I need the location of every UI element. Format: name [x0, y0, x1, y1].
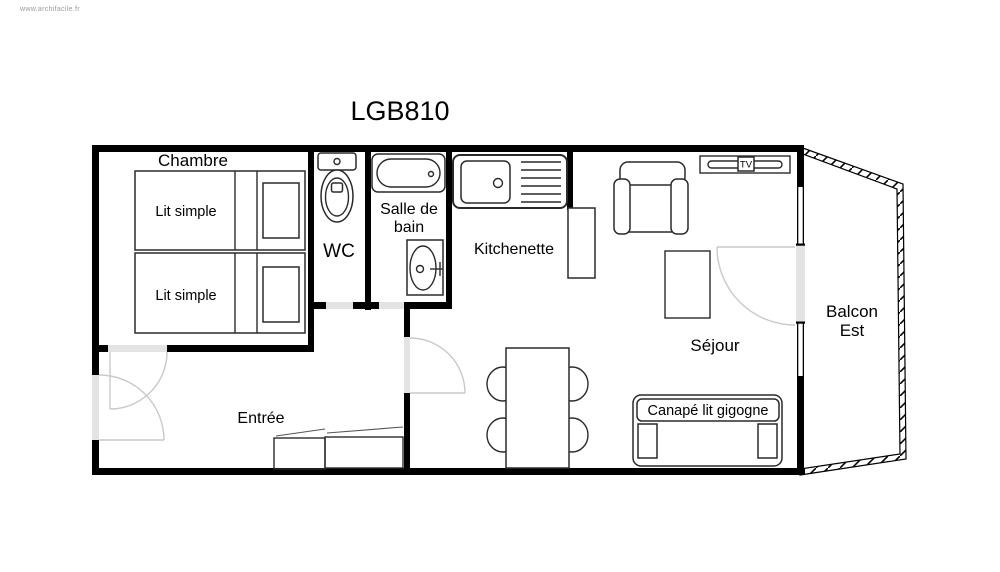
room-label-sejour: Séjour [690, 336, 739, 355]
room-label-entree: Entrée [237, 410, 284, 427]
entry-storage [274, 427, 403, 469]
tv-label: TV [740, 160, 753, 171]
bed-single-1: Lit simple [135, 171, 305, 250]
floor-plan-drawing: LGB810 [0, 0, 1000, 572]
sofa-cushion [638, 424, 657, 458]
entry-door-opening [92, 375, 99, 440]
sofa-bed: Canapé lit gigogne [633, 395, 782, 466]
bed-label: Lit simple [155, 204, 216, 220]
balcony-door-arc [717, 247, 795, 325]
side-table [665, 251, 710, 318]
entry-door-arc [99, 375, 164, 440]
wc-door-opening [326, 302, 353, 309]
bed-single-2: Lit simple [135, 253, 305, 333]
balcony-door-opening [796, 245, 805, 323]
room-label-wc: WC [323, 241, 355, 262]
bath-door-opening [379, 302, 404, 309]
plan-title: LGB810 [350, 96, 449, 126]
sofa-label: Canapé lit gigogne [648, 403, 769, 419]
hall-door-arc [410, 338, 465, 393]
chambre-door-arc [110, 352, 167, 409]
bathtub [372, 154, 445, 192]
dining-table [506, 348, 569, 468]
bathroom-sink [407, 240, 443, 295]
room-label-balcon-1: Balcon [826, 302, 878, 321]
balcony-window-wall [796, 187, 805, 376]
dining-set [487, 348, 588, 468]
pillow [263, 183, 299, 238]
kitchen-counter [453, 155, 567, 208]
sofa-cushion [758, 424, 777, 458]
bed-label: Lit simple [155, 288, 216, 304]
room-label-balcon-2: Est [840, 321, 865, 340]
room-label-chambre: Chambre [158, 151, 228, 170]
room-label-kitchenette: Kitchenette [474, 241, 554, 258]
toilet [318, 153, 356, 222]
floor-plan-page: www.archifacile.fr LGB810 [0, 0, 1000, 572]
hall-door-opening [404, 337, 410, 393]
tv-unit: TV [700, 156, 790, 173]
chambre-door-opening [108, 345, 167, 352]
pillow [263, 267, 299, 322]
room-label-salle-de-bain-1: Salle de [380, 201, 438, 218]
kitchen-cabinet [568, 208, 595, 278]
armchair [614, 162, 688, 234]
room-label-salle-de-bain-2: bain [394, 219, 424, 236]
